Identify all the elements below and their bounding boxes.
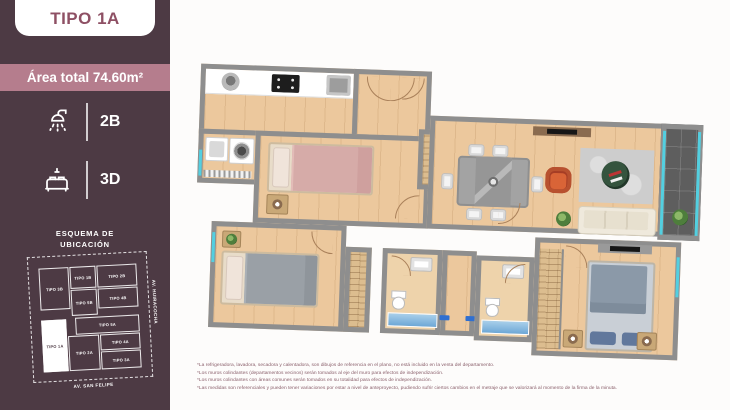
- dryer-icon: [205, 137, 229, 162]
- lamp-icon: [568, 334, 578, 344]
- shower-area: [481, 320, 529, 336]
- laundry: [197, 129, 261, 185]
- window-glass: [211, 232, 215, 262]
- closet-master: [536, 249, 563, 350]
- lamp-icon: [642, 336, 652, 346]
- tv-icon: [610, 246, 640, 252]
- stat-divider: [86, 161, 88, 199]
- nightstand: [636, 332, 657, 351]
- dining-chair: [531, 176, 544, 192]
- unit-tile-3a[interactable]: TIPO 3A: [101, 349, 142, 369]
- dining-chair: [466, 208, 482, 221]
- shower-door-marker: [439, 315, 449, 320]
- nightstand: [266, 194, 289, 215]
- unit-tile-3b[interactable]: TIPO 3B: [38, 267, 70, 311]
- bedrooms-stat: 3D: [0, 158, 170, 202]
- balcony-glass: [695, 132, 702, 236]
- dining-chair: [468, 144, 484, 157]
- bedrooms-value: 3D: [100, 171, 130, 189]
- dining-chair: [441, 173, 454, 189]
- bathroom1-door-arc: [391, 255, 412, 276]
- shower-icon: [40, 105, 74, 139]
- laundry-mat: [203, 170, 251, 179]
- corridor-door-arc: [498, 202, 521, 225]
- bathroom-2: [474, 255, 535, 342]
- tv-sideboard: [533, 126, 591, 137]
- footnote-line: *Los muros colindantes (departamentos ve…: [197, 370, 652, 378]
- tv-icon: [547, 129, 577, 135]
- footnote-line: *Las medidas son referenciales y pueden …: [197, 385, 652, 393]
- building-outline: TIPO 3B TIPO 1B TIPO 2B TIPO 4B TIPO 5B …: [38, 260, 142, 373]
- nightstand: [222, 230, 242, 248]
- hall-door-arc: [402, 78, 425, 101]
- balcony: [657, 124, 703, 241]
- toilet-icon: [485, 298, 499, 316]
- dining-table: [456, 156, 530, 208]
- unit-tile-1a-highlighted[interactable]: TIPO 1A: [41, 319, 69, 372]
- bathrooms-value: 2B: [100, 113, 130, 131]
- unit-tile-1b[interactable]: TIPO 1B: [69, 266, 96, 289]
- unit-tile-2a[interactable]: TIPO 2A: [68, 335, 101, 372]
- bed-single-pink: [267, 142, 375, 196]
- washer-icon: [229, 138, 255, 165]
- lamp-icon: [272, 199, 282, 209]
- bedroom1-door-arc: [395, 194, 420, 219]
- plant-icon: [226, 234, 237, 245]
- tv-console: [598, 244, 652, 255]
- unit-tile-2b[interactable]: TIPO 2B: [96, 264, 137, 288]
- unit-type-title: TIPO 1A: [50, 9, 120, 29]
- window-glass: [198, 150, 202, 176]
- bedroom2-door-arc: [311, 232, 334, 255]
- master-door-arc: [565, 245, 588, 268]
- pot-icon: [221, 72, 240, 91]
- armchair: [545, 167, 572, 194]
- kitchen: [199, 64, 359, 139]
- living-dining: [427, 116, 667, 237]
- plant-icon: [556, 211, 572, 227]
- window-glass: [675, 257, 679, 297]
- street-label-bottom: AV. SAN FELIPE: [35, 380, 153, 391]
- footnotes: *La refrigeradora, lavadora, secadora y …: [197, 362, 652, 392]
- floorplan-page: TIPO 1A Área total 74.60m² 2B: [0, 0, 730, 410]
- shower-area: [387, 312, 437, 328]
- stat-divider: [86, 103, 88, 141]
- unit-tile-4b[interactable]: TIPO 4B: [98, 286, 139, 308]
- footnote-line: *La refrigeradora, lavadora, secadora y …: [197, 362, 652, 370]
- plant-icon: [672, 209, 689, 226]
- floor-plan: [183, 49, 713, 375]
- area-total-band: Área total 74.60m²: [0, 64, 170, 91]
- bedroom-1: [253, 131, 431, 229]
- bed-single-gray: [220, 250, 320, 307]
- toilet-icon: [391, 290, 405, 308]
- unit-tile-5a[interactable]: TIPO 5A: [75, 314, 140, 334]
- area-total-label: Área total 74.60m²: [27, 70, 143, 85]
- hallway: [440, 250, 477, 336]
- bathrooms-stat: 2B: [0, 100, 170, 144]
- entry-door-arc: [366, 76, 391, 101]
- unit-tile-4a[interactable]: TIPO 4A: [100, 332, 141, 350]
- unit-type-card: TIPO 1A: [15, 0, 155, 36]
- unit-tile-5b[interactable]: TIPO 5B: [71, 289, 98, 316]
- bed-icon: [40, 163, 74, 197]
- sidebar: TIPO 1A Área total 74.60m² 2B: [0, 0, 170, 410]
- bathroom-1: [380, 248, 443, 335]
- footnote-line: *Los muros colindantes con áreas comunes…: [197, 377, 652, 385]
- kitchen-counter: [205, 69, 354, 99]
- location-schematic: TIPO 3B TIPO 1B TIPO 2B TIPO 4B TIPO 5B …: [27, 251, 153, 383]
- sofa: [578, 206, 657, 237]
- closet-bedroom2: [343, 247, 372, 333]
- bath-sink-icon: [410, 257, 432, 272]
- kitchen-sink-icon: [326, 75, 351, 96]
- dining-chair: [492, 145, 508, 158]
- master-bedroom: [531, 237, 681, 360]
- balcony-glass: [660, 131, 667, 235]
- stove-icon: [271, 74, 300, 93]
- nightstand: [563, 329, 584, 348]
- schema-heading: ESQUEMA DE UBICACIÓN: [0, 228, 170, 251]
- bedroom-2: [208, 221, 347, 332]
- street-label-right: AV. HUIRACOCHA: [151, 279, 158, 324]
